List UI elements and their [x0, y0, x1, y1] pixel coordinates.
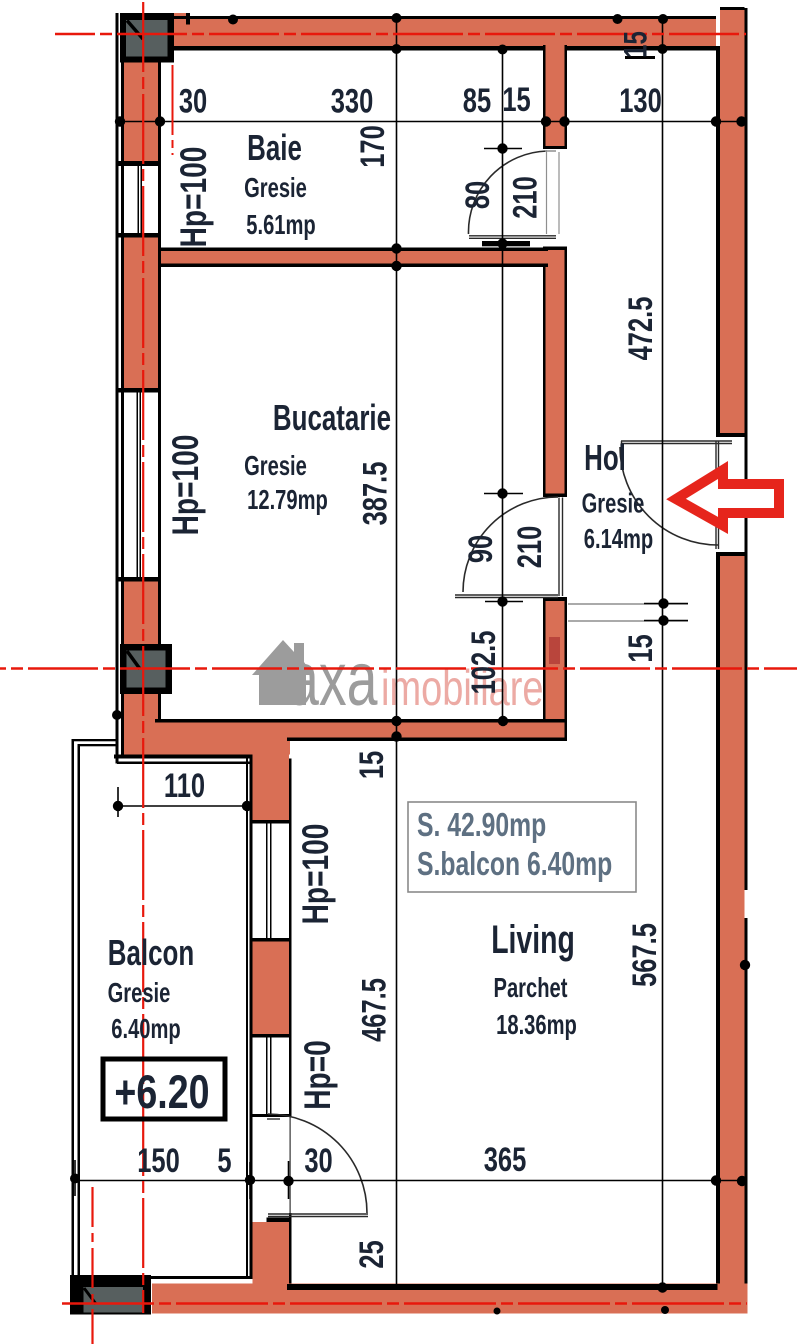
svg-text:S.balcon 6.40mp: S.balcon 6.40mp [417, 847, 612, 883]
svg-text:Gresie: Gresie [244, 173, 307, 204]
svg-text:Parchet: Parchet [494, 973, 568, 1004]
svg-text:472.5: 472.5 [623, 297, 660, 361]
svg-text:110: 110 [164, 768, 205, 805]
svg-text:467.5: 467.5 [356, 978, 393, 1042]
svg-text:85: 85 [463, 83, 491, 120]
svg-text:90: 90 [463, 535, 500, 563]
svg-text:15: 15 [623, 634, 660, 662]
svg-text:5: 5 [217, 1143, 231, 1180]
svg-text:+6.20: +6.20 [114, 1066, 209, 1119]
svg-text:Gresie: Gresie [582, 488, 645, 519]
svg-text:Baie: Baie [247, 128, 302, 168]
svg-text:25: 25 [354, 1240, 391, 1268]
svg-text:130: 130 [619, 83, 662, 120]
svg-text:80: 80 [460, 181, 497, 209]
svg-text:6.40mp: 6.40mp [111, 1014, 180, 1045]
svg-text:S. 42.90mp: S. 42.90mp [417, 808, 546, 844]
svg-text:15: 15 [617, 31, 653, 58]
svg-text:Gresie: Gresie [244, 451, 307, 482]
svg-text:Gresie: Gresie [108, 978, 171, 1009]
svg-text:330: 330 [331, 83, 374, 120]
svg-text:12.79mp: 12.79mp [247, 485, 328, 516]
svg-text:15: 15 [502, 82, 530, 119]
svg-text:170: 170 [355, 125, 392, 168]
svg-text:102.5: 102.5 [466, 631, 503, 695]
svg-text:30: 30 [179, 83, 207, 120]
svg-text:15: 15 [354, 751, 391, 779]
svg-text:6.14mp: 6.14mp [584, 524, 653, 555]
svg-text:Hp=100: Hp=100 [164, 435, 206, 536]
svg-text:567.5: 567.5 [627, 923, 664, 987]
svg-text:5.61mp: 5.61mp [246, 210, 315, 241]
svg-text:Hp=0: Hp=0 [296, 1040, 338, 1110]
svg-text:210: 210 [512, 526, 549, 569]
svg-text:210: 210 [507, 176, 544, 219]
svg-text:30: 30 [304, 1143, 332, 1180]
svg-text:Balcon: Balcon [108, 933, 194, 973]
svg-text:18.36mp: 18.36mp [496, 1010, 577, 1041]
svg-text:Hp=100: Hp=100 [172, 147, 214, 248]
svg-text:Hol: Hol [584, 438, 626, 478]
svg-text:365: 365 [484, 1142, 527, 1179]
svg-text:150: 150 [137, 1143, 180, 1180]
svg-text:axa: axa [288, 638, 377, 723]
svg-text:387.5: 387.5 [357, 462, 394, 526]
svg-text:Living: Living [491, 918, 575, 962]
svg-text:Bucatarie: Bucatarie [273, 398, 391, 438]
svg-text:Hp=100: Hp=100 [294, 824, 336, 925]
